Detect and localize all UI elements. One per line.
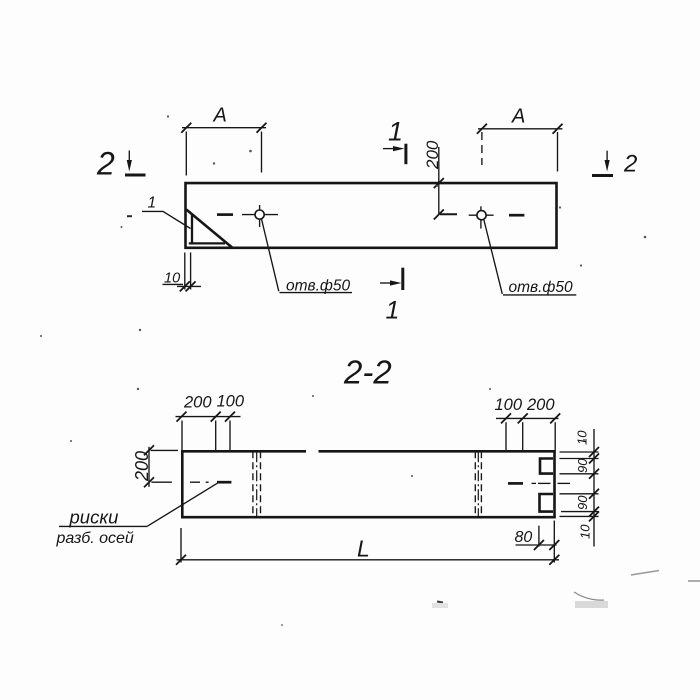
svg-text:90: 90 bbox=[575, 458, 590, 473]
svg-text:разб. осей: разб. осей bbox=[56, 530, 134, 547]
svg-text:1: 1 bbox=[386, 296, 400, 324]
svg-text:L: L bbox=[357, 536, 370, 562]
svg-text:10: 10 bbox=[578, 524, 593, 539]
svg-text:2-2: 2-2 bbox=[343, 354, 392, 391]
svg-text:1: 1 bbox=[148, 195, 157, 212]
svg-text:риски: риски bbox=[69, 507, 119, 528]
svg-text:отв.ф50: отв.ф50 bbox=[509, 279, 573, 296]
svg-text:200: 200 bbox=[183, 394, 212, 412]
svg-text:80: 80 bbox=[515, 529, 533, 546]
svg-text:100: 100 bbox=[217, 393, 245, 411]
svg-text:1: 1 bbox=[388, 117, 403, 147]
svg-text:A: A bbox=[511, 106, 525, 128]
svg-text:2: 2 bbox=[96, 145, 115, 181]
svg-text:100: 100 bbox=[495, 396, 523, 414]
svg-text:A: A bbox=[213, 105, 227, 127]
svg-text:200: 200 bbox=[526, 396, 555, 414]
svg-text:отв.ф50: отв.ф50 bbox=[286, 278, 350, 295]
svg-text:10: 10 bbox=[575, 430, 590, 445]
svg-text:90: 90 bbox=[575, 495, 590, 510]
svg-text:2: 2 bbox=[623, 150, 637, 177]
